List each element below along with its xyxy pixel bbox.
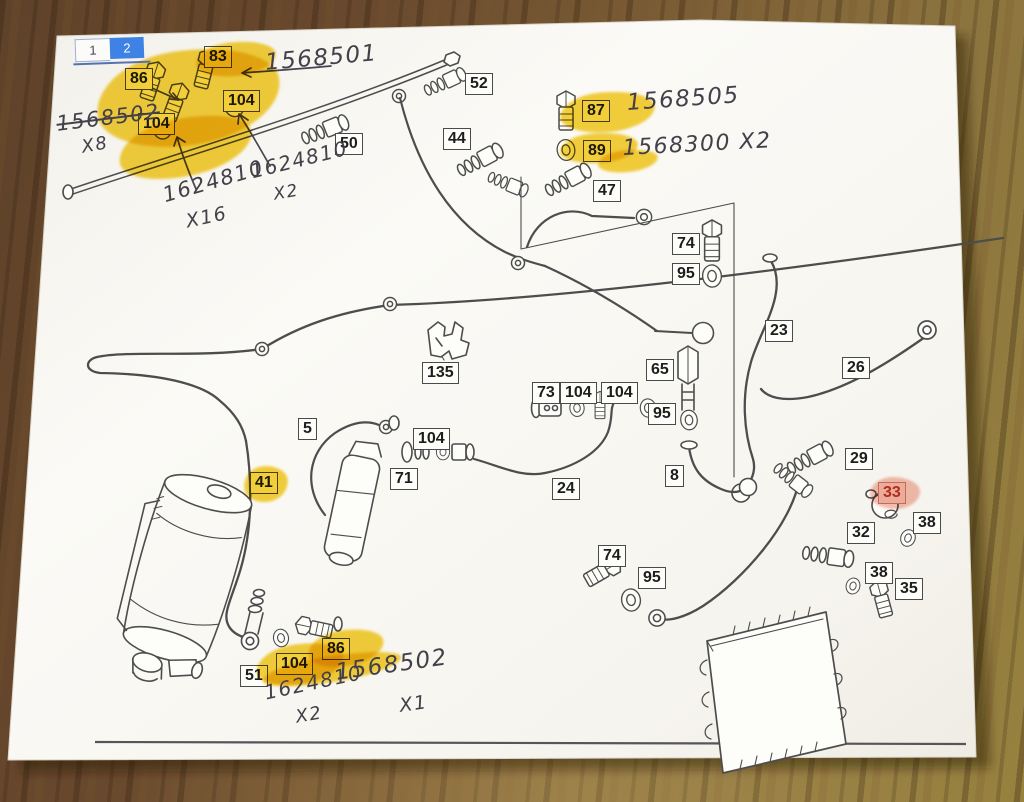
page-tab-2: 2	[110, 37, 145, 59]
photo-of-parts-diagram: 8386104104525044878947749523266595135731…	[0, 0, 1024, 802]
diagram-scene	[0, 0, 1024, 802]
page-tabs: 1 2	[73, 37, 151, 66]
page-tab-1: 1	[75, 38, 111, 62]
